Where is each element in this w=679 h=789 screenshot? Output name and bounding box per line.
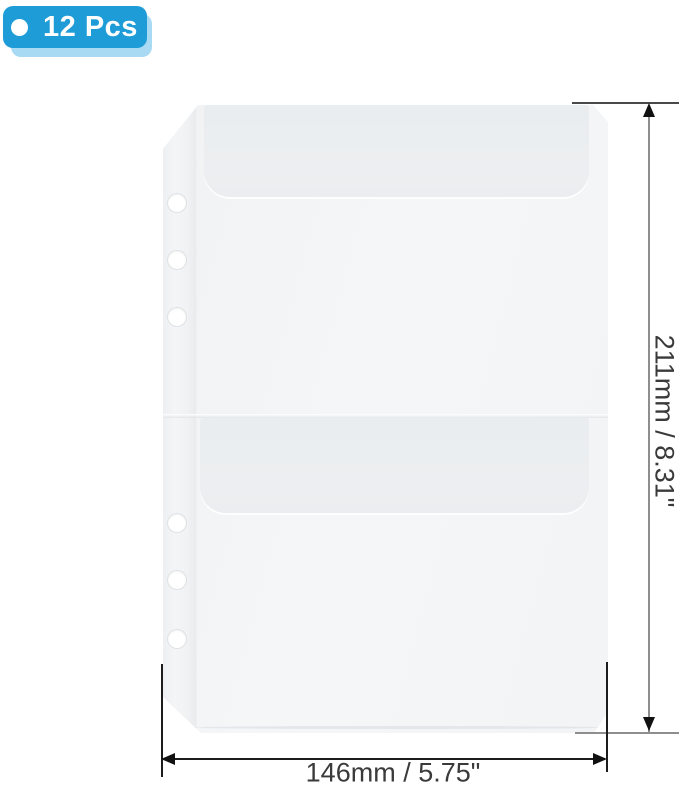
- product-image: 12 Pcs 211mm / 8.31" 146mm / 5.75": [0, 0, 679, 789]
- bullet-dot-icon: [11, 19, 28, 36]
- binder-pocket: [163, 105, 608, 733]
- count-badge: 12 Pcs: [0, 0, 170, 70]
- width-dimension-label: 146mm / 5.75": [306, 758, 481, 789]
- binder-hole: [168, 514, 186, 532]
- binder-hole: [168, 571, 186, 589]
- arrow-right-icon: [593, 753, 607, 765]
- badge-count-label: 12 Pcs: [43, 13, 138, 42]
- arrow-left-icon: [161, 753, 175, 765]
- arrow-up-icon: [643, 103, 655, 117]
- pocket-bottom-edge: [193, 726, 604, 729]
- binder-hole: [168, 308, 186, 326]
- pocket-flap-bottom: [200, 418, 589, 513]
- height-extension-line-bottom: [575, 732, 679, 734]
- height-dimension-label: 211mm / 8.31": [649, 335, 679, 508]
- binder-hole: [168, 194, 186, 212]
- badge-body: 12 Pcs: [3, 6, 147, 48]
- binder-hole: [168, 251, 186, 269]
- arrow-down-icon: [643, 717, 655, 731]
- pocket-flap-top: [204, 105, 589, 197]
- binder-hole: [168, 630, 186, 648]
- height-extension-line-top: [572, 102, 679, 104]
